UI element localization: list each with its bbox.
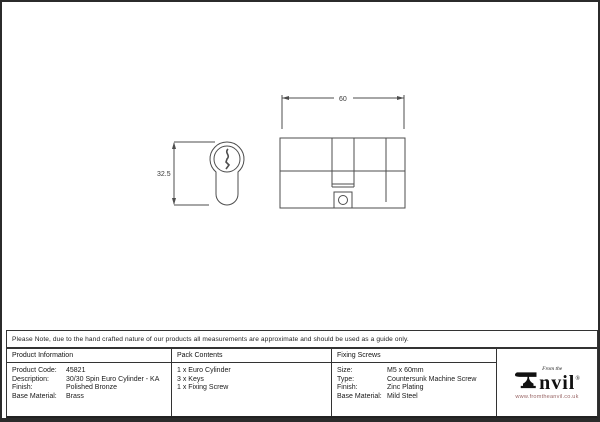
table-row: Product Code: 45821 <box>12 367 171 376</box>
width-dimension-label: 60 <box>339 96 347 103</box>
table-row: Description: 30/30 Spin Euro Cylinder - … <box>12 376 171 385</box>
height-dimension-label: 32.5 <box>157 171 171 178</box>
row-label: Finish: <box>12 384 66 393</box>
row-label: Base Material: <box>12 393 66 402</box>
row-value: Countersunk Machine Screw <box>387 376 496 385</box>
technical-drawing: 60 32.5 <box>2 2 600 332</box>
anvil-logo: From the nvil® <box>514 366 580 391</box>
pack-contents-body: 1 x Euro Cylinder 3 x Keys 1 x Fixing Sc… <box>172 363 331 393</box>
list-item: 3 x Keys <box>177 376 331 385</box>
logo-name-text: nvil <box>539 372 575 394</box>
product-information-column: Product Information Product Code: 45821 … <box>7 349 171 416</box>
row-value: M5 x 60mm <box>387 367 496 376</box>
table-row: Base Material: Mild Steel <box>337 393 496 402</box>
disclaimer-note-text: Please Note, due to the hand crafted nat… <box>12 336 409 343</box>
row-value: 30/30 Spin Euro Cylinder - KA <box>66 376 171 385</box>
row-value: Polished Bronze <box>66 384 171 393</box>
fixing-screws-body: Size: M5 x 60mm Type: Countersunk Machin… <box>332 363 496 401</box>
list-item: 1 x Fixing Screw <box>177 384 331 393</box>
pack-contents-header: Pack Contents <box>172 349 331 363</box>
row-label: Type: <box>337 376 387 385</box>
cam-screw-housing <box>334 192 352 208</box>
brand-logo-cell: From the nvil® www.fromtheanvil.co.uk <box>496 349 597 416</box>
row-label: Finish: <box>337 384 387 393</box>
pack-contents-column: Pack Contents 1 x Euro Cylinder 3 x Keys… <box>171 349 331 416</box>
row-label: Base Material: <box>337 393 387 402</box>
cam-screw-hole <box>339 196 348 205</box>
list-item: 1 x Euro Cylinder <box>177 367 331 376</box>
registered-mark: ® <box>575 376 580 382</box>
datasheet-page: 60 32.5 <box>0 0 600 422</box>
table-row: Type: Countersunk Machine Screw <box>337 376 496 385</box>
row-value: Mild Steel <box>387 393 496 402</box>
table-row: Finish: Zinc Plating <box>337 384 496 393</box>
row-label: Description: <box>12 376 66 385</box>
anvil-icon <box>514 370 538 391</box>
fixing-screws-header: Fixing Screws <box>332 349 496 363</box>
spec-table: Product Information Product Code: 45821 … <box>6 348 598 418</box>
product-information-body: Product Code: 45821 Description: 30/30 S… <box>7 363 171 401</box>
table-row: Base Material: Brass <box>12 393 171 402</box>
cylinder-drawing-svg: 60 32.5 <box>2 2 600 332</box>
row-value: Zinc Plating <box>387 384 496 393</box>
row-value: Brass <box>66 393 171 402</box>
logo-text: From the nvil® <box>539 366 580 391</box>
logo-website: www.fromtheanvil.co.uk <box>515 394 578 400</box>
row-label: Size: <box>337 367 387 376</box>
height-dimension <box>172 142 215 205</box>
row-label: Product Code: <box>12 367 66 376</box>
product-information-header: Product Information <box>7 349 171 363</box>
cylinder-side-view <box>280 138 405 208</box>
cylinder-front-view <box>210 142 244 205</box>
row-value: 45821 <box>66 367 171 376</box>
disclaimer-note-box: Please Note, due to the hand crafted nat… <box>6 330 598 348</box>
logo-name: nvil® <box>539 372 580 391</box>
fixing-screws-column: Fixing Screws Size: M5 x 60mm Type: Coun… <box>331 349 496 416</box>
table-row: Finish: Polished Bronze <box>12 384 171 393</box>
table-row: Size: M5 x 60mm <box>337 367 496 376</box>
key-silhouette <box>226 149 229 169</box>
